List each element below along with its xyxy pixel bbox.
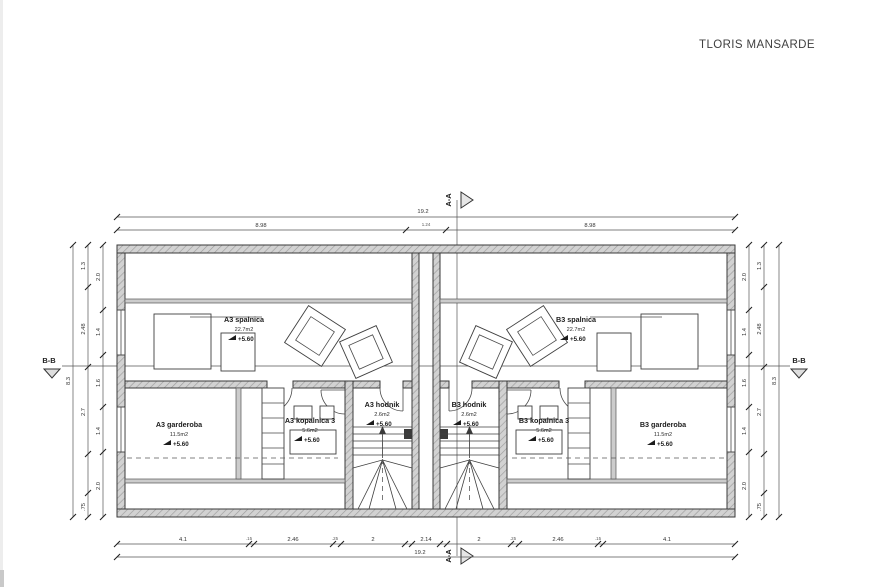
floor-plan-svg: TLORIS MANSARDE A-A A-A B-B B-B bbox=[0, 0, 873, 587]
knee-wall-bottom-b bbox=[507, 479, 727, 483]
section-arrow-top-icon bbox=[461, 192, 473, 208]
section-label-aa-top: A-A bbox=[444, 193, 453, 207]
closet-a bbox=[154, 314, 211, 369]
staircase-b bbox=[440, 426, 499, 509]
dim-label: 1.4 bbox=[96, 426, 102, 435]
wall-bottom bbox=[117, 509, 735, 517]
dim-label: 1.6 bbox=[742, 379, 748, 387]
sheet-title: TLORIS MANSARDE bbox=[699, 39, 815, 51]
dim-label: .75 bbox=[757, 503, 763, 511]
elevation-marker-icon bbox=[366, 420, 374, 425]
dim-label: 2.46 bbox=[287, 537, 298, 543]
bed-b bbox=[597, 333, 631, 371]
room-level: +5.60 bbox=[657, 441, 673, 448]
party-wall bbox=[412, 253, 440, 509]
room-level: +5.60 bbox=[538, 437, 554, 444]
knee-wall-bottom-a bbox=[125, 479, 345, 483]
dim-label: 2 bbox=[477, 537, 480, 543]
section-label-aa-bottom: A-A bbox=[444, 549, 453, 563]
room-name: B3 spalnica bbox=[556, 315, 597, 324]
wall-top bbox=[117, 245, 735, 253]
dimension-top: 19.2 8.98 1.24 8.98 bbox=[114, 209, 738, 233]
dimension-left: 8.3 1.3 2.48 2.7 .75 2.0 1.4 1.6 1.4 2.0 bbox=[66, 242, 106, 520]
dim-label: 19.2 bbox=[414, 550, 425, 556]
dim-label: .75 bbox=[81, 503, 87, 511]
dim-label: 8.3 bbox=[66, 377, 72, 385]
roof-window-icon bbox=[285, 306, 346, 367]
room-area: 22.7m2 bbox=[235, 327, 254, 333]
elevation-marker-icon bbox=[163, 440, 171, 445]
dim-label: 1.4 bbox=[742, 327, 748, 336]
room-area: 11.5m2 bbox=[654, 432, 672, 438]
dim-label: 4.1 bbox=[179, 537, 187, 543]
room-name: B3 hodnik bbox=[452, 400, 487, 409]
dim-label: 2.0 bbox=[96, 482, 102, 490]
scan-edge-left bbox=[0, 0, 3, 587]
room-label-garderoba-a: A3 garderoba 11.5m2 +5.60 bbox=[156, 420, 203, 448]
dimension-bottom: 4.1 .15 2.46 .25 2 2.14 2 .25 2.46 .15 4… bbox=[114, 536, 738, 560]
garderoba-divider-b bbox=[611, 388, 616, 479]
dim-label: 1.6 bbox=[96, 379, 102, 387]
mid-wall-b3 bbox=[472, 381, 499, 388]
room-name: B3 kopalnica 3 bbox=[519, 416, 569, 425]
wall-left bbox=[117, 253, 125, 509]
room-level: +5.60 bbox=[304, 437, 320, 444]
dim-label: .15 bbox=[595, 536, 602, 541]
room-area: 22.7m2 bbox=[567, 327, 586, 333]
mid-wall-b4 bbox=[440, 381, 449, 388]
dim-label: 8.98 bbox=[584, 223, 595, 229]
mid-wall-a2 bbox=[293, 381, 345, 388]
dim-label: 2.0 bbox=[742, 273, 748, 281]
room-label-spalnica-a: A3 spalnica 22.7m2 +5.60 bbox=[224, 315, 265, 343]
room-level: +5.60 bbox=[238, 336, 254, 343]
dim-label: 1.4 bbox=[96, 327, 102, 336]
roof-window-icon bbox=[340, 326, 393, 379]
dim-label: .25 bbox=[332, 536, 339, 541]
knee-wall-top-a bbox=[125, 299, 412, 303]
stair-wall-a bbox=[345, 381, 353, 509]
shelf-column-a bbox=[262, 388, 284, 479]
room-area: 2.6m2 bbox=[461, 412, 477, 418]
mid-wall-a3 bbox=[353, 381, 380, 388]
dim-label: .15 bbox=[246, 536, 253, 541]
interior-walls bbox=[125, 299, 727, 509]
dim-label: 4.1 bbox=[663, 537, 671, 543]
closet-b bbox=[641, 314, 698, 369]
room-name: A3 garderoba bbox=[156, 420, 203, 429]
dim-label: 2.7 bbox=[757, 408, 763, 416]
dim-label: 2.0 bbox=[96, 273, 102, 281]
dim-label: 2.46 bbox=[552, 537, 563, 543]
elevation-marker-icon bbox=[647, 440, 655, 445]
section-arrow-right-icon bbox=[791, 369, 807, 378]
room-name: A3 hodnik bbox=[365, 400, 400, 409]
mid-wall-a1 bbox=[125, 381, 267, 388]
drawing-sheet: TLORIS MANSARDE A-A A-A B-B B-B bbox=[0, 0, 873, 587]
scan-corner-mark bbox=[0, 570, 4, 587]
room-name: A3 kopalnica 3 bbox=[285, 416, 335, 425]
knee-wall-top-b bbox=[440, 299, 727, 303]
room-level: +5.60 bbox=[463, 421, 479, 428]
dim-label: 8.3 bbox=[772, 377, 778, 385]
room-area: 11.5m2 bbox=[170, 432, 188, 438]
dim-label: .25 bbox=[510, 536, 517, 541]
dimension-right: 8.3 1.3 2.48 2.7 .75 2.0 1.4 1.6 1.4 2.0 bbox=[742, 242, 782, 520]
dim-label: 2.0 bbox=[742, 482, 748, 490]
party-wall-leaf-b bbox=[433, 253, 440, 509]
dim-label: 2.48 bbox=[81, 323, 87, 334]
section-label-bb-left: B-B bbox=[42, 356, 56, 365]
dim-label: 2.14 bbox=[420, 537, 432, 543]
dim-label: 1.3 bbox=[757, 262, 763, 270]
room-name: B3 garderoba bbox=[640, 420, 687, 429]
room-label-garderoba-b: B3 garderoba 11.5m2 +5.60 bbox=[640, 420, 687, 448]
dim-label: 2.48 bbox=[757, 323, 763, 334]
dim-label: 1.24 bbox=[422, 222, 431, 227]
room-area: 2.6m2 bbox=[374, 412, 390, 418]
staircase-a bbox=[353, 426, 412, 509]
room-level: +5.60 bbox=[376, 421, 392, 428]
dim-label: 8.98 bbox=[255, 223, 266, 229]
section-arrow-left-icon bbox=[44, 369, 60, 378]
room-level: +5.60 bbox=[570, 336, 586, 343]
mid-wall-a4 bbox=[403, 381, 412, 388]
shelf-column-b bbox=[568, 388, 590, 479]
dim-label: 1.4 bbox=[742, 426, 748, 435]
roof-window-icon bbox=[460, 326, 513, 379]
doors bbox=[267, 388, 585, 414]
dim-label: 19.2 bbox=[417, 209, 428, 215]
wall-right bbox=[727, 253, 735, 509]
bathroom-fixtures bbox=[290, 406, 562, 454]
dim-label: 1.3 bbox=[81, 262, 87, 270]
room-area: 5.6m2 bbox=[536, 428, 552, 434]
room-label-hodnik-a: A3 hodnik 2.6m2 +5.60 bbox=[365, 400, 400, 428]
dim-label: 2.7 bbox=[81, 408, 87, 416]
room-level: +5.60 bbox=[173, 441, 189, 448]
room-area: 5.6m2 bbox=[302, 428, 318, 434]
room-label-spalnica-b: B3 spalnica 22.7m2 +5.60 bbox=[556, 315, 597, 343]
dim-label: 2 bbox=[371, 537, 374, 543]
stair-wall-b bbox=[499, 381, 507, 509]
mid-wall-b1 bbox=[585, 381, 727, 388]
mid-wall-b2 bbox=[507, 381, 559, 388]
room-name: A3 spalnica bbox=[224, 315, 265, 324]
garderoba-divider-a bbox=[236, 388, 241, 479]
section-label-bb-right: B-B bbox=[792, 356, 806, 365]
party-wall-leaf-a bbox=[412, 253, 419, 509]
section-arrow-bottom-icon bbox=[461, 548, 473, 564]
